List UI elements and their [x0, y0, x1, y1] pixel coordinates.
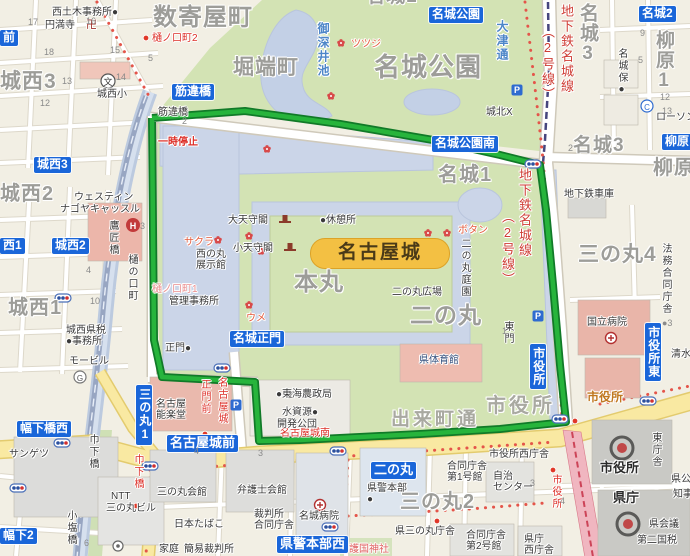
poi-johoku: 城北X	[486, 107, 513, 118]
poi-nishinomaru-tenjikan: 西の丸 展示館	[196, 249, 226, 271]
subway-line2-1: （2号線）	[541, 25, 554, 102]
poi-higashi-chosha: 東庁舎	[650, 432, 660, 468]
poi-shiyakusho-nishi-chosha: 市役所西庁舎	[489, 449, 549, 460]
poi-jichi-center: 自治 センター	[493, 471, 533, 493]
poi-kanri-jimusho: 管理事務所	[169, 296, 219, 307]
poi-godo-chosha-1: 合同庁舎 第1号館	[447, 461, 487, 483]
stop-seimon-mae: 正門前	[199, 379, 209, 415]
poi-kencho-nishi-chosha: 県庁 西庁舎	[524, 534, 554, 556]
stop-hinokuchicho2: 樋ノ口町2	[152, 33, 198, 44]
badge-ninomaru: 二の丸	[371, 462, 416, 479]
blocknum-5: 13	[62, 76, 72, 86]
badge-josei2: 城西2	[52, 238, 89, 254]
poi-josei-kenzei: 城西県税 ●事務所	[66, 325, 106, 347]
poi-kaihatsu-kodan: 開発公団	[277, 419, 317, 430]
poi-kenkei-honbu: 県警本部 ●	[367, 483, 407, 505]
poi-kenkaigi: 県会議	[649, 519, 679, 530]
badge-shiyakusho: 市役所	[530, 344, 546, 389]
poi-kenko: 県公	[671, 474, 690, 485]
district-meijo1: 名城1	[438, 164, 492, 186]
blocknum-19: 2	[288, 390, 293, 400]
blocknum-2: 16	[86, 16, 96, 26]
badge-nagoyajo-mae: 名古屋城前	[167, 435, 238, 452]
district-josei2: 城西2	[0, 183, 54, 205]
blocknum-8: 5	[148, 53, 153, 63]
badge-meijo2: 名城2	[639, 6, 676, 22]
district-meijo-koen: 名城公園	[374, 53, 482, 82]
district-sukiyacho: 数寄屋町	[153, 5, 253, 32]
badge-sujikaibashi: 筋違橋	[172, 84, 214, 100]
labels-layer: 数寄屋町城西3城西2城西1堀端町名城公園名城1名城1名城3名城3柳原1柳原本丸二…	[0, 0, 690, 556]
flower-sakura-label: サクラ	[184, 237, 214, 248]
badge-meijo-koen-minami: 名城公園南	[432, 136, 498, 152]
map-canvas[interactable]: P	[0, 0, 690, 556]
badge-sannomaru1: 三の丸1	[136, 385, 152, 445]
poi-saibansho: 裁判所 合同庁舎	[254, 509, 294, 531]
poi-mizushigen: 水資源●	[282, 407, 318, 418]
poi-westin-1: ウェスティン	[74, 192, 133, 203]
blocknum-3: 18	[44, 47, 54, 57]
blocknum-10: 2	[568, 143, 573, 153]
district-sannomaru2: 三の丸2	[400, 491, 475, 513]
poi-kani-saibansho: 簡易裁判所	[184, 544, 234, 555]
poi-meijo-ho: 名城保●	[616, 48, 626, 97]
blocknum-4: 15	[110, 45, 120, 55]
poi-daitenshukaku: 大天守閣	[228, 215, 268, 226]
poi-katei: 家庭	[159, 544, 179, 555]
flower-tsutsuji-label: ツツジ	[351, 39, 381, 50]
blocknum-17: 3	[258, 448, 263, 458]
note-ichiji-teishi: 一時停止	[158, 137, 198, 148]
blocknum-12: 5	[638, 55, 643, 65]
poi-shimizu: 清水	[671, 349, 690, 360]
blocknum-20: 3	[530, 478, 535, 488]
road-otsu-dori: 大津通	[496, 20, 508, 62]
poi-chikatetsu-shako: 地下鉄車庫	[564, 189, 614, 200]
poi-homu-godo-chosha: 法務合同庁舎	[660, 243, 670, 315]
subway-line2-2: （2号線）	[501, 210, 514, 287]
blocknum-24: 1	[502, 326, 507, 336]
poi-shotenshukaku: 小天守閣	[233, 243, 273, 254]
poi-nogakudo: 名古屋 能楽堂	[156, 399, 186, 421]
poi-shiyakusho-building: 市役所	[600, 461, 639, 476]
poi-sannomaru-building: 三の丸ビル	[106, 503, 156, 514]
blocknum-13: 12	[660, 92, 670, 102]
road-dekimachi-dori: 出来町通	[391, 409, 479, 430]
blocknum-22: 6	[84, 538, 89, 548]
blocknum-7: 12	[40, 98, 50, 108]
badge-shiyakusho-higashi: 市役所東	[645, 323, 661, 381]
district-yanagihara1-vertical: 柳原1	[654, 30, 673, 92]
stop-shiyakusho: 市役所	[550, 474, 560, 510]
poi-kencho: 県庁	[613, 491, 639, 506]
poi-meijo-byoin: 名城病院	[299, 511, 339, 522]
badge-kenkei-honbu-nishi: 県警本部西	[277, 536, 348, 553]
poi-ken-sannomaru-chosha: 県三の丸庁舎	[395, 526, 455, 537]
poi-godo-chosha-2: 合同庁舎 第2号館	[466, 530, 506, 552]
station-shiyakusho-road: 市役所	[587, 391, 623, 404]
poi-daini-kokuzei: 第二国税	[637, 535, 677, 546]
district-meijo3: 名城3	[573, 135, 625, 156]
poi-nihon-tabako: 日本たばこ	[174, 519, 224, 530]
badge-meijo-koen: 名城公園	[429, 7, 483, 23]
badge-yanagihara: 柳原	[662, 134, 690, 150]
district-meijo1-top: 名城1	[366, 0, 418, 7]
stop-habashitabashi: 巾下橋	[132, 454, 142, 490]
district-josei1: 城西1	[8, 297, 62, 319]
badge-josei3: 城西3	[34, 157, 71, 173]
poi-habashitabashi-bridge: 巾下橋	[87, 434, 97, 470]
district-honmaru: 本丸	[294, 270, 344, 297]
badge-habashita2: 幅下2	[0, 528, 37, 544]
poi-kokuritsu-byoin: 国立病院	[587, 317, 627, 328]
poi-sannomaru-kaikan: 三の丸会館	[157, 487, 207, 498]
poi-koshiobashi: 小塩橋	[65, 510, 75, 546]
blocknum-18: 4	[194, 446, 199, 456]
poi-ninomaru-hiroba: 二の丸広場	[392, 287, 442, 298]
district-horibatacho: 堀端町	[233, 56, 299, 80]
subway-meijo-line-1: 地下鉄名城線	[560, 4, 573, 94]
blocknum-11: 9	[640, 28, 645, 38]
district-sannomaru4: 三の丸4	[578, 243, 657, 267]
flower-botan-label: ボタン	[458, 225, 488, 236]
shrine-gokoku-jinja: 護国神社	[349, 544, 389, 555]
blocknum-9: 2	[182, 116, 187, 126]
poi-chiji: 知事	[673, 489, 690, 500]
poi-seimon: 正門●	[165, 343, 191, 354]
poi-westin-2: ナゴヤキャッスル	[60, 204, 140, 215]
blocknum-14: 13	[662, 106, 672, 116]
flower-ume-label: ウメ	[246, 313, 266, 324]
poi-tokai-noseikyoku: ●東海農政局	[276, 389, 332, 400]
poi-sangetsu: サンゲツ	[9, 449, 49, 460]
badge-habashitabashi-nishi: 幅下橋西	[17, 421, 71, 437]
blocknum-6: 14	[116, 72, 126, 82]
badge-meijo-seimon: 名城正門	[230, 331, 284, 347]
badge-josei1-partial: 西1	[0, 238, 25, 254]
poi-bengoshi-kaikan: 弁護士会館	[237, 485, 287, 496]
poi-josei-elementary: 城西小	[97, 89, 127, 100]
poi-takajobashi: 鷹匠橋	[107, 220, 117, 256]
blocknum-1: 17	[28, 17, 38, 27]
blocknum-15: 3	[140, 221, 145, 231]
district-meijo3-vertical: 名城3	[578, 3, 597, 65]
poi-ntt: NTT	[111, 491, 130, 502]
town-hinokuchicho1: 樋ノ口町1	[152, 284, 198, 295]
poi-hinokuchicho: 樋の口町	[126, 254, 136, 302]
poi-kenritsu-taiikukan: 県体育館	[419, 355, 459, 366]
poi-mobil: モービル	[69, 356, 109, 367]
poi-ninomaru-teien: 二の丸庭園	[459, 238, 469, 298]
blocknum-25: ●3	[662, 318, 672, 328]
badge-mae-partial: 前	[0, 30, 18, 46]
blocknum-23: 10	[90, 296, 100, 306]
subway-meijo-line-2: 地下鉄名城線	[518, 168, 531, 258]
district-josei3: 城西3	[0, 70, 57, 94]
district-yanagihara: 柳原	[653, 157, 690, 179]
road-shiyakusho-area: 市役所	[486, 395, 555, 417]
poi-kyukeijo: ●休憩所	[320, 215, 356, 226]
stop-nagoyajo: 名古屋城	[216, 377, 226, 425]
poi-enmanji: 円満寺	[45, 20, 75, 31]
pond-ofuke-ike: 御深井池	[317, 22, 329, 78]
blocknum-21: 4	[560, 496, 565, 506]
district-ninomaru: 二の丸	[410, 303, 482, 329]
blocknum-16: 4	[86, 265, 91, 275]
